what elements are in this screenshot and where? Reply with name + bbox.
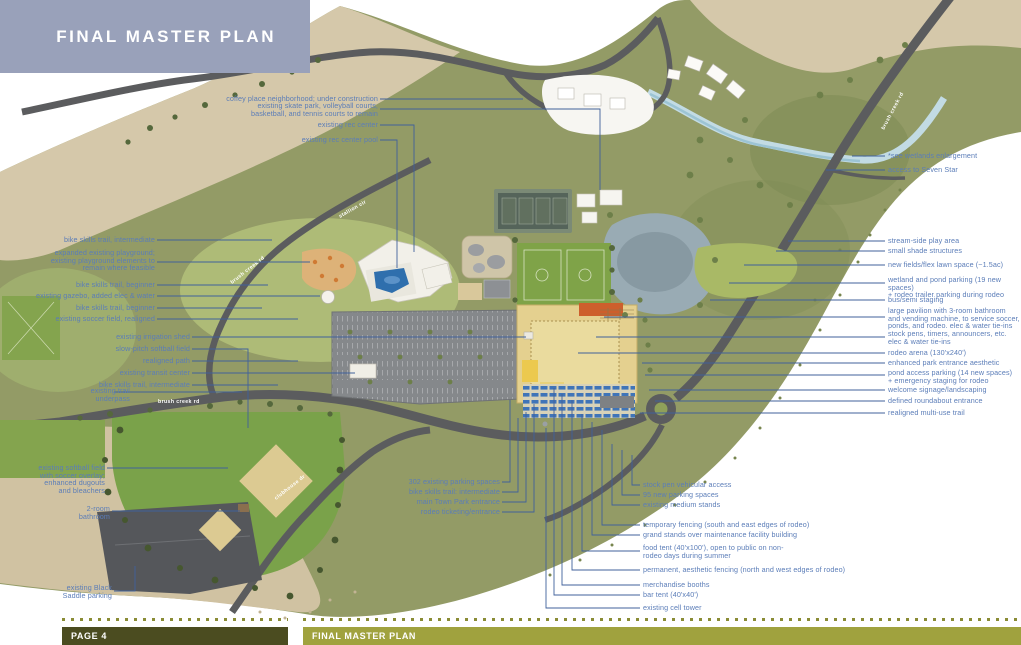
callout-expanded-playground: expanded existing playground; existing p… bbox=[51, 249, 155, 272]
callout-bus-staging: bus/semi staging bbox=[888, 296, 944, 304]
callout-grand-stands: grand stands over maintenance facility b… bbox=[643, 531, 797, 539]
stock-pens bbox=[600, 308, 634, 320]
callout-stock-pen-access: stock pen vehicular access bbox=[643, 481, 732, 489]
callout-302-parking: 302 existing parking spaces bbox=[409, 478, 500, 486]
footer-dotted-rule-left bbox=[62, 618, 288, 621]
soccer-fields bbox=[517, 243, 611, 307]
callout-bike-trail-int-3: bike skills trail: intermediate bbox=[409, 488, 500, 496]
callout-rodeo-arena: rodeo arena (130'x240') bbox=[888, 349, 966, 357]
gazebo bbox=[322, 291, 335, 304]
callout-welcome-signage: welcome signage/landscaping bbox=[888, 386, 987, 394]
callout-food-tent: food tent (40'x100'), open to public on … bbox=[643, 544, 784, 559]
rodeo-arena bbox=[531, 321, 619, 387]
callout-roundabout-entrance: defined roundabout entrance bbox=[888, 397, 983, 405]
callout-main-entrance: main Town Park entrance bbox=[417, 498, 500, 506]
pond-depth bbox=[617, 232, 693, 292]
page-header: FINAL MASTER PLAN bbox=[0, 0, 310, 73]
pool-water bbox=[384, 276, 400, 284]
callout-stream-play-area: stream-side play area bbox=[888, 237, 959, 245]
callout-cell-tower: existing cell tower bbox=[643, 604, 702, 612]
footer-dotted-rule-right bbox=[303, 618, 1021, 621]
rodeo-grounds bbox=[517, 303, 637, 427]
callout-wetlands-enlargement: *see wetlands enlargement bbox=[888, 152, 977, 160]
road-label-brush-creek-lower: brush creek rd bbox=[158, 399, 200, 405]
creek-hillside bbox=[750, 95, 910, 205]
callout-irrigation-shed: existing irrigation shed bbox=[116, 333, 190, 341]
callout-transit-center: existing transit center bbox=[120, 369, 190, 377]
basketball-court bbox=[484, 280, 510, 298]
callout-trail-underpass: existing trail underpass bbox=[91, 387, 130, 402]
callout-large-pavilion: large pavilion with 3-room bathroom and … bbox=[888, 307, 1020, 330]
page-title: FINAL MASTER PLAN bbox=[56, 27, 276, 47]
callout-multiuse-trail: realigned multi-use trail bbox=[888, 409, 965, 417]
callout-softball-overlay: existing softball field with soccer over… bbox=[38, 464, 105, 495]
volleyball-court bbox=[458, 283, 482, 300]
parking-aisle bbox=[334, 355, 538, 360]
roundabout bbox=[646, 394, 676, 424]
footer-page-label: PAGE 4 bbox=[71, 631, 107, 641]
callout-stock-pens: stock pens, timers, announcers, etc. ele… bbox=[888, 330, 1007, 345]
maintenance-building bbox=[600, 396, 634, 408]
callout-seven-star: access to Seven Star bbox=[888, 166, 958, 174]
callout-medium-stands: existing medium stands bbox=[643, 501, 720, 509]
callout-95-parking: 95 new parking spaces bbox=[643, 491, 719, 499]
transit-center bbox=[350, 364, 376, 378]
parking-aisle bbox=[334, 330, 538, 335]
callout-black-saddle: existing Black Saddle parking bbox=[63, 584, 112, 599]
playground bbox=[302, 249, 356, 291]
callout-bike-trail-beg-2: bike skills trail, beginner bbox=[76, 304, 155, 312]
callout-temporary-fencing: temporary fencing (south and east edges … bbox=[643, 521, 809, 529]
black-saddle-parking bbox=[97, 502, 262, 594]
callout-bike-trail-beg-1: bike skills trail, beginner bbox=[76, 281, 155, 289]
callout-merchandise-booths: merchandise booths bbox=[643, 581, 710, 589]
skate-park bbox=[462, 236, 512, 278]
callout-pond-access-parking: pond access parking (14 new spaces) + em… bbox=[888, 369, 1012, 384]
footer-title: FINAL MASTER PLAN bbox=[312, 631, 416, 641]
irrigation-shed bbox=[524, 332, 533, 339]
callout-soccer-realigned: existing soccer field, realigned bbox=[56, 315, 155, 323]
callout-rec-center-pool: existing rec center pool bbox=[302, 136, 378, 144]
callout-bar-tent: bar tent (40'x40') bbox=[643, 591, 698, 599]
callout-flex-lawn: new fields/flex lawn space (~1.5ac) bbox=[888, 261, 1003, 269]
callout-rodeo-ticketing: rodeo ticketing/entrance bbox=[421, 508, 500, 516]
parking-aisle bbox=[334, 380, 538, 385]
callout-bike-trail-int-1: bike skills trail, intermediate bbox=[64, 236, 155, 244]
cell-tower bbox=[543, 422, 548, 427]
callout-rec-center: existing rec center bbox=[318, 121, 378, 129]
callout-realigned-path: realigned path bbox=[143, 357, 190, 365]
footer-page-bar: PAGE 4 bbox=[62, 627, 288, 645]
callout-gazebo: existing gazebo, added elec & water bbox=[36, 292, 155, 300]
callout-permanent-fencing: permanent, aesthetic fencing (north and … bbox=[643, 566, 845, 574]
rodeo-shed bbox=[522, 360, 538, 382]
callout-2-room-bathroom: 2-room bathroom bbox=[79, 505, 110, 520]
callout-shade-structures: small shade structures bbox=[888, 247, 962, 255]
callout-skate-park: existing skate park, volleyball courts, … bbox=[251, 102, 378, 117]
footer-title-bar: FINAL MASTER PLAN bbox=[303, 627, 1021, 645]
bathroom-building bbox=[238, 504, 249, 512]
callout-entrance-aesthetic: enhanced park entrance aesthetic bbox=[888, 359, 1000, 367]
callout-slow-pitch-field: slow-pitch softball field bbox=[116, 345, 190, 353]
